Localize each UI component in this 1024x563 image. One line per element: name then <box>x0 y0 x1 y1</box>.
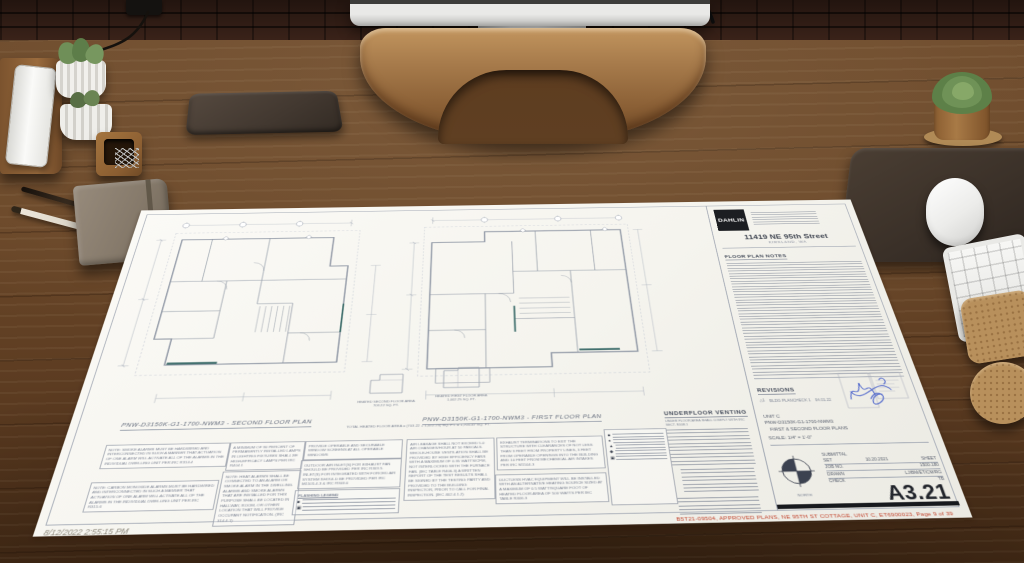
note-outdoor-air: OUTDOOR AIR INLET(S) FOR EXHAUST FAN SHO… <box>297 458 402 489</box>
note-heat-alarms: NOTE: HEAT ALARMS SHALL BE CONNECTED TO … <box>212 470 302 526</box>
key-plan-outline <box>366 371 407 396</box>
phone-dock <box>0 58 62 174</box>
window-tag <box>520 228 526 232</box>
note-co-alarms: NOTE: CARBON MONOXIDE ALARMS MUST BE HAR… <box>82 480 219 513</box>
keyed-note-row: ● <box>608 438 664 443</box>
set-label: SET <box>823 459 833 463</box>
job-label: JOB NO. <box>825 465 844 469</box>
desk-tray <box>185 91 343 135</box>
job-value: 1500.180 <box>919 463 939 467</box>
roof-overhang-dashed <box>135 230 360 375</box>
revisions-title: REVISIONS <box>757 388 796 395</box>
keyed-note-row: ◆ <box>610 450 667 455</box>
window-tag <box>602 227 608 231</box>
heated-second-area-label: HEATED SECOND FLOOR AREA 703.22 SQ. FT. <box>354 399 418 408</box>
heated-first-area-label: HEATED FIRST FLOOR AREA 1,002.25 SQ. FT. <box>429 393 494 402</box>
keyed-note-lines <box>613 438 665 443</box>
underfloor-venting-body <box>667 428 757 466</box>
submittal-block: SUBMITTAL SET10.20.2021SHEET JOB NO.1500… <box>821 451 952 504</box>
divider <box>770 442 929 446</box>
magic-mouse <box>926 178 984 246</box>
revision-marker: △1 <box>759 398 766 403</box>
paperclips <box>115 148 139 168</box>
revision-entry: BLDG PLANCHECK 1 <box>769 398 811 402</box>
sheet-label: SHEET <box>921 457 938 461</box>
legend-row: ■ <box>297 498 396 504</box>
second-floor-key-plan: HEATED SECOND FLOOR AREA 703.22 SQ. FT. <box>354 371 419 408</box>
keyed-note-symbol: ▣ <box>610 456 615 460</box>
scale-note: SCALE: 1/4" = 1'-0" <box>768 433 927 441</box>
plot-timestamp: 8/12/2022 2:55:15 PM <box>43 527 130 538</box>
keyed-note-symbol: ◆ <box>610 451 614 455</box>
phone <box>5 64 57 168</box>
keyed-note-symbol: ▲ <box>609 445 614 449</box>
keyed-note-symbol: ■ <box>608 434 611 438</box>
key-plan-outline <box>440 364 483 390</box>
paperclip-holder <box>96 132 142 176</box>
legend-symbol: ■ <box>297 500 300 504</box>
note-exhaust-terminations: EXHAUST TERMINATIONS TO EXIT THE STRUCTU… <box>496 436 606 471</box>
keyed-note-lines <box>615 444 666 449</box>
desk-scene: PNW-D3150K-G1-1700-NWM3 - SECOND FLOOR P… <box>0 0 1024 563</box>
north-arrow <box>773 454 822 489</box>
drawn-value: LJ/BM/ET/CM/RG <box>905 470 943 475</box>
floor-plan-notes-body <box>726 261 903 378</box>
legend-text-lines <box>302 504 395 510</box>
underfloor-venting-title: UNDERFLOOR VENTING <box>664 410 748 418</box>
cork-coaster-square <box>959 289 1024 365</box>
legend-text-lines <box>302 498 396 504</box>
paperclip-holder-opening <box>104 139 134 165</box>
window-tag <box>223 236 229 240</box>
teal-wall-accents <box>167 304 344 364</box>
architectural-sheet: PNW-D3150K-G1-1700-NWM3 - SECOND FLOOR P… <box>33 200 973 537</box>
note-air-leakage: AIR LEAKAGE SHALL NOT EXCEED 5.0 AIR CHA… <box>403 438 495 501</box>
check-label: CHECK <box>829 479 846 484</box>
project-city: KIRKLAND, WA <box>721 240 855 245</box>
note-window-screens: PROVIDE OPERABLE AND SECURABLE WINDOW SC… <box>303 439 403 460</box>
legend-row: ▣ <box>296 504 395 510</box>
firm-name: DAHLIN <box>717 217 745 223</box>
power-outlet <box>126 0 162 15</box>
roof-overhang-dashed <box>418 224 650 376</box>
north-arrow-group: NORTH <box>773 454 830 506</box>
underfloor-venting-note <box>680 468 759 495</box>
walls <box>426 227 642 383</box>
stairs <box>519 297 571 313</box>
keyed-note-symbol: ● <box>608 439 611 443</box>
window-tag <box>306 235 312 239</box>
teal-wall-accents <box>514 304 620 351</box>
note-ductless-hvac: DUCTLESS HVAC EQUIPMENT WILL BE INSTALLE… <box>495 472 609 504</box>
keyed-note-lines <box>615 450 667 455</box>
dahlin-logo: DAHLIN <box>713 209 749 231</box>
set-value: 10.20.2021 <box>865 457 889 461</box>
keyed-note-row: ■ <box>608 433 664 438</box>
first-floor-key-plan: HEATED FIRST FLOOR AREA 1,002.25 SQ. FT. <box>429 364 494 402</box>
flashing-legend: FLASHING LEGEND ■ ▣ <box>292 488 401 515</box>
revision-date: 04.01.22 <box>815 398 832 402</box>
keyed-note-lines <box>612 433 664 438</box>
underfloor-venting-subtitle: UNDER FLOOR AREA SHALL COMPLY WITH IRC S… <box>665 418 755 427</box>
walls <box>147 234 352 365</box>
note-lamps: A MINIMUM OF 90 PERCENT OF PERMANENTLY I… <box>225 441 306 471</box>
north-label: NORTH <box>782 492 828 498</box>
drawn-label: DRAWN <box>827 472 845 476</box>
keyed-note-lines <box>616 455 667 460</box>
keyed-note-row: ▲ <box>609 444 666 449</box>
succulent-right-inner <box>952 82 974 100</box>
grid-bubbles <box>182 222 303 228</box>
monitor-bottom <box>350 0 710 26</box>
flashing-legend-title: FLASHING LEGEND <box>298 492 339 497</box>
stairs <box>255 306 290 332</box>
keyed-note-row: ▣ <box>610 455 667 460</box>
firm-address-lines <box>751 211 821 226</box>
keyed-notes-box: ■ ● ▲ ◆ ▣ <box>604 428 679 505</box>
floor-plan-notes-title: FLOOR PLAN NOTES <box>724 254 787 260</box>
note-smoke-alarms: NOTE: SMOKE ALARMS MUST BE HARDWIRED AND… <box>99 443 230 469</box>
legend-symbol: ▣ <box>296 506 301 510</box>
